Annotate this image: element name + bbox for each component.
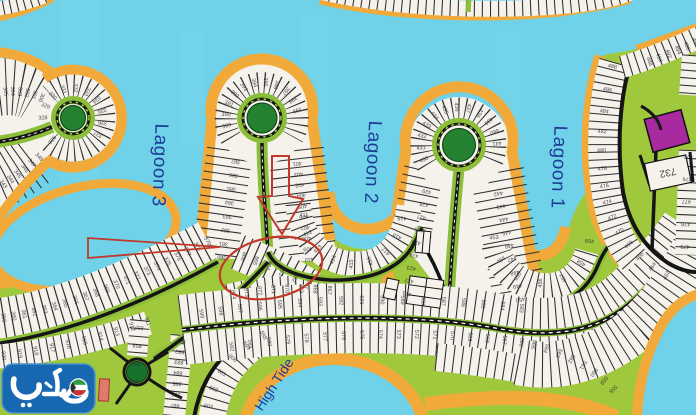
svg-text:403: 403 [295,181,305,188]
svg-text:431: 431 [416,145,426,152]
svg-text:478: 478 [598,166,608,173]
svg-text:885: 885 [172,380,182,387]
svg-text:304: 304 [9,87,15,96]
svg-text:401: 401 [292,159,302,166]
svg-text:597: 597 [236,304,243,314]
svg-text:383: 383 [222,212,232,219]
svg-text:858: 858 [132,342,142,349]
svg-text:588: 588 [419,296,425,305]
svg-text:303: 303 [16,87,23,97]
svg-text:Lagoon 3: Lagoon 3 [148,123,172,207]
svg-text:436: 436 [453,102,460,112]
svg-text:868: 868 [311,284,317,293]
svg-text:887: 887 [170,402,180,409]
svg-text:479: 479 [680,243,689,249]
svg-text:566: 566 [517,337,524,347]
svg-text:480: 480 [597,148,606,154]
svg-text:419: 419 [397,215,406,221]
svg-text:410: 410 [304,255,314,262]
svg-text:860: 860 [129,378,139,385]
svg-text:477: 477 [682,198,691,204]
svg-text:567: 567 [501,335,508,345]
svg-text:381: 381 [219,240,229,247]
svg-text:598: 598 [216,306,223,316]
svg-text:586: 586 [460,298,467,308]
svg-text:886: 886 [171,391,181,398]
svg-text:871: 871 [269,285,276,295]
svg-text:882: 882 [175,348,185,355]
svg-text:409: 409 [303,245,313,252]
svg-text:859: 859 [131,360,141,367]
svg-text:590: 590 [379,295,385,304]
svg-text:569: 569 [466,332,473,342]
svg-text:579: 579 [284,335,291,345]
svg-text:920: 920 [0,351,7,361]
svg-text:336: 336 [98,119,108,126]
svg-text:411: 411 [299,213,308,219]
svg-text:883: 883 [174,358,184,365]
svg-text:453: 453 [489,235,499,242]
svg-text:595: 595 [276,300,283,310]
svg-text:881: 881 [176,338,186,345]
svg-text:583: 583 [517,303,524,313]
svg-text:593: 593 [317,297,323,306]
svg-text:575: 575 [358,330,364,339]
svg-text:441: 441 [492,139,502,146]
svg-text:328: 328 [38,115,47,121]
svg-text:459: 459 [585,237,595,244]
svg-text:390: 390 [221,112,230,118]
svg-text:576: 576 [340,331,346,340]
svg-text:573: 573 [395,330,401,339]
svg-text:395: 395 [262,77,268,86]
svg-text:592: 592 [337,296,343,305]
svg-text:484: 484 [599,108,609,115]
svg-text:382: 382 [221,226,231,233]
svg-text:572: 572 [413,330,419,339]
svg-text:570: 570 [449,331,455,340]
svg-text:596: 596 [256,301,263,311]
svg-text:587: 587 [440,297,446,306]
svg-text:Lagoon 1: Lagoon 1 [547,125,571,209]
svg-text:867: 867 [326,285,333,295]
svg-text:584: 584 [499,301,506,311]
svg-text:568: 568 [483,333,490,343]
svg-text:415: 415 [349,259,355,268]
svg-text:359: 359 [0,313,7,323]
svg-text:Lagoon 2: Lagoon 2 [360,120,385,204]
svg-text:402: 402 [293,170,303,177]
svg-text:574: 574 [377,330,383,339]
svg-text:857: 857 [134,324,144,331]
svg-text:456: 456 [538,278,544,287]
svg-text:884: 884 [173,369,183,376]
svg-text:571: 571 [431,330,437,339]
svg-text:870: 870 [283,284,289,293]
svg-text:589: 589 [399,295,405,304]
svg-text:591: 591 [358,295,364,304]
svg-text:594: 594 [296,298,303,308]
svg-text:478: 478 [681,220,690,226]
svg-text:585: 585 [479,299,486,309]
svg-text:872: 872 [256,286,263,296]
svg-text:482: 482 [597,129,606,135]
svg-text:475: 475 [683,153,692,159]
svg-text:577: 577 [321,332,328,342]
svg-text:578: 578 [302,333,309,343]
svg-text:476: 476 [682,175,691,181]
svg-text:332: 332 [72,83,78,92]
